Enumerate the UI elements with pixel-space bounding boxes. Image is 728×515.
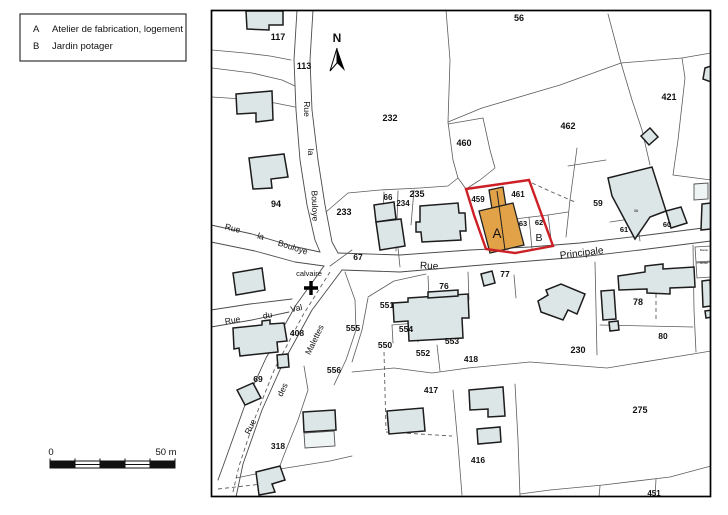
parcel-line — [368, 274, 426, 297]
feature-label-A: A — [492, 226, 501, 241]
street-rue-la-bouloye-v-3: Bouloye — [309, 190, 320, 221]
parcel-line — [437, 345, 440, 371]
map-frame — [212, 11, 711, 497]
parcel-234: 234 — [396, 199, 410, 208]
parcel-line-dashed — [384, 352, 386, 430]
parcel-line — [621, 53, 711, 63]
parcel-line — [236, 456, 352, 478]
parcel-551: 551 — [380, 300, 394, 310]
ecole-label: Ecole — [700, 261, 708, 265]
map-labels: 1171139423256460462421233662342356745946… — [224, 13, 708, 498]
building-footprint — [249, 154, 288, 189]
parcel-line — [466, 118, 495, 189]
legend: A Atelier de fabrication, logement B Jar… — [20, 14, 186, 61]
parcel-77: 77 — [500, 269, 510, 279]
legend-key-a: A — [33, 24, 40, 35]
parcel-416: 416 — [471, 455, 485, 465]
parcel-line — [448, 118, 483, 124]
mairie-label: Mairie — [700, 248, 708, 252]
building-footprint — [481, 271, 495, 286]
feature-label-B: B — [535, 232, 542, 244]
building-footprint — [233, 268, 265, 295]
parcel-line — [520, 466, 711, 494]
legend-label-a: Atelier de fabrication, logement — [52, 24, 183, 35]
scale-segment — [100, 461, 125, 468]
scale-end-label: 50 m — [155, 447, 176, 458]
street-rue-des-malettes-2: des — [275, 381, 290, 398]
street-rue-la-bouloye-d-3: Bouloye — [277, 238, 310, 257]
street-rue-principale-2: Principale — [559, 245, 604, 261]
street-rue-la-bouloye-d-2: la — [256, 230, 265, 242]
parcel-line — [530, 351, 711, 368]
parcel-80: 80 — [658, 331, 668, 341]
parcel-line — [595, 262, 597, 355]
street-rue-des-malettes-3: Malettes — [303, 323, 326, 356]
parcel-462: 462 — [560, 121, 575, 131]
north-label: N — [333, 31, 342, 45]
parcel-line — [330, 250, 352, 266]
parcel-550: 550 — [378, 340, 392, 350]
street-rue-du-val-2: du — [262, 309, 273, 321]
parcel-56: 56 — [514, 13, 524, 23]
parcel-230: 230 — [570, 345, 585, 355]
building-footprint — [304, 431, 335, 448]
parcel-66: 66 — [384, 193, 393, 202]
parcel-60: 60 — [663, 220, 671, 229]
building-footprint — [376, 219, 405, 250]
legend-box — [20, 14, 186, 61]
street-edge — [211, 299, 292, 310]
parcel-94: 94 — [271, 199, 281, 209]
parcel-78: 78 — [633, 297, 643, 307]
parcel-line — [453, 390, 462, 495]
parcel-76: 76 — [439, 281, 449, 291]
calvaire-cross-icon — [304, 281, 318, 295]
parcel-line — [568, 160, 606, 166]
parcel-61: 61 — [620, 225, 628, 234]
parcel-62: 62 — [535, 218, 543, 227]
parcel-line — [515, 384, 520, 497]
parcel-line-dashed — [532, 183, 575, 202]
calvaire-label: calvaire — [296, 269, 322, 278]
parcel-552: 552 — [416, 348, 430, 358]
building-footprint — [246, 11, 283, 30]
parcel-63: 63 — [519, 219, 527, 228]
parcel-line — [566, 148, 577, 237]
parcel-408: 408 — [290, 328, 304, 338]
building-footprint — [428, 290, 458, 298]
cadastral-map: A Atelier de fabrication, logement B Jar… — [0, 0, 728, 515]
parcel-113: 113 — [297, 61, 312, 71]
building-footprint — [233, 320, 287, 356]
legend-label-b: Jardin potager — [52, 41, 113, 52]
parcel-line — [608, 14, 621, 63]
parcel-line — [446, 10, 466, 189]
parcel-417: 417 — [424, 385, 438, 395]
building-footprint — [601, 290, 616, 320]
parcel-553: 553 — [445, 336, 459, 346]
building-footprint — [387, 408, 425, 434]
parcel-line — [212, 68, 295, 86]
street-rue-principale-1: Rue — [420, 261, 439, 273]
building-footprint — [237, 383, 261, 405]
parcel-67: 67 — [353, 252, 363, 262]
building-footprint — [477, 427, 501, 444]
building-footprint — [609, 321, 619, 331]
parcel-line — [398, 248, 400, 267]
parcel-line — [392, 325, 393, 343]
parcel-59: 59 — [593, 198, 603, 208]
parcel-69: 69 — [253, 374, 263, 384]
parcel-421: 421 — [661, 92, 676, 102]
north-arrow-right-half — [337, 48, 345, 71]
scale-segment — [50, 461, 75, 468]
parcel-554: 554 — [399, 324, 413, 334]
parcel-461: 461 — [511, 190, 525, 199]
street-rue-la-bouloye-v-1: Rue — [302, 101, 312, 117]
parcel-line — [599, 486, 600, 497]
building-footprint — [538, 284, 585, 320]
parcel-line — [621, 63, 650, 165]
parcel-235: 235 — [409, 189, 424, 199]
building-footprint — [694, 183, 708, 200]
building-footprint — [641, 128, 658, 145]
parcel-line — [673, 175, 711, 180]
parcel-line — [448, 63, 621, 122]
building-footprint — [236, 91, 273, 122]
building-number-36: 36 — [634, 208, 639, 213]
building-footprint — [705, 310, 713, 318]
building-footprint — [701, 203, 711, 230]
parcel-555: 555 — [346, 323, 360, 333]
parcel-232: 232 — [382, 113, 397, 123]
parcel-line-dashed — [218, 484, 262, 489]
parcel-233: 233 — [336, 207, 351, 217]
building-footprint — [618, 264, 695, 294]
parcel-line — [212, 50, 291, 60]
parcel-459: 459 — [471, 195, 485, 204]
north-arrow: N — [330, 31, 345, 71]
building-footprint — [416, 203, 466, 242]
building-footprint — [277, 354, 289, 368]
street-rue-la-bouloye-d-1: Rue — [224, 221, 242, 235]
building-footprint — [256, 466, 285, 495]
building-footprint — [608, 167, 666, 239]
building-footprint — [469, 387, 505, 417]
scale-start-label: 0 — [48, 447, 53, 458]
building-footprint — [374, 202, 396, 222]
parcel-line — [514, 275, 516, 298]
building-footprint — [303, 410, 336, 432]
scale-bar: 0 50 m — [48, 447, 176, 468]
street-rue-la-bouloye-v-2: la — [306, 149, 316, 156]
parcel-117: 117 — [271, 32, 286, 42]
parcel-556: 556 — [327, 365, 341, 375]
legend-key-b: B — [33, 41, 39, 52]
parcel-line — [673, 58, 685, 175]
map-content: N 11711394232564604624212336623423567459… — [211, 10, 713, 498]
street-rue-du-val-3: Val — [290, 302, 304, 314]
scale-segment — [150, 461, 175, 468]
north-arrow-left-half — [330, 48, 337, 71]
street-rue-du-val-1: Rue — [224, 314, 241, 327]
parcel-318: 318 — [271, 441, 285, 451]
parcel-460: 460 — [456, 138, 471, 148]
parcel-line — [529, 217, 532, 249]
parcel-and-street-lines — [211, 10, 711, 497]
parcel-275: 275 — [632, 405, 647, 415]
parcel-line — [352, 362, 530, 373]
parcel-418: 418 — [464, 354, 478, 364]
